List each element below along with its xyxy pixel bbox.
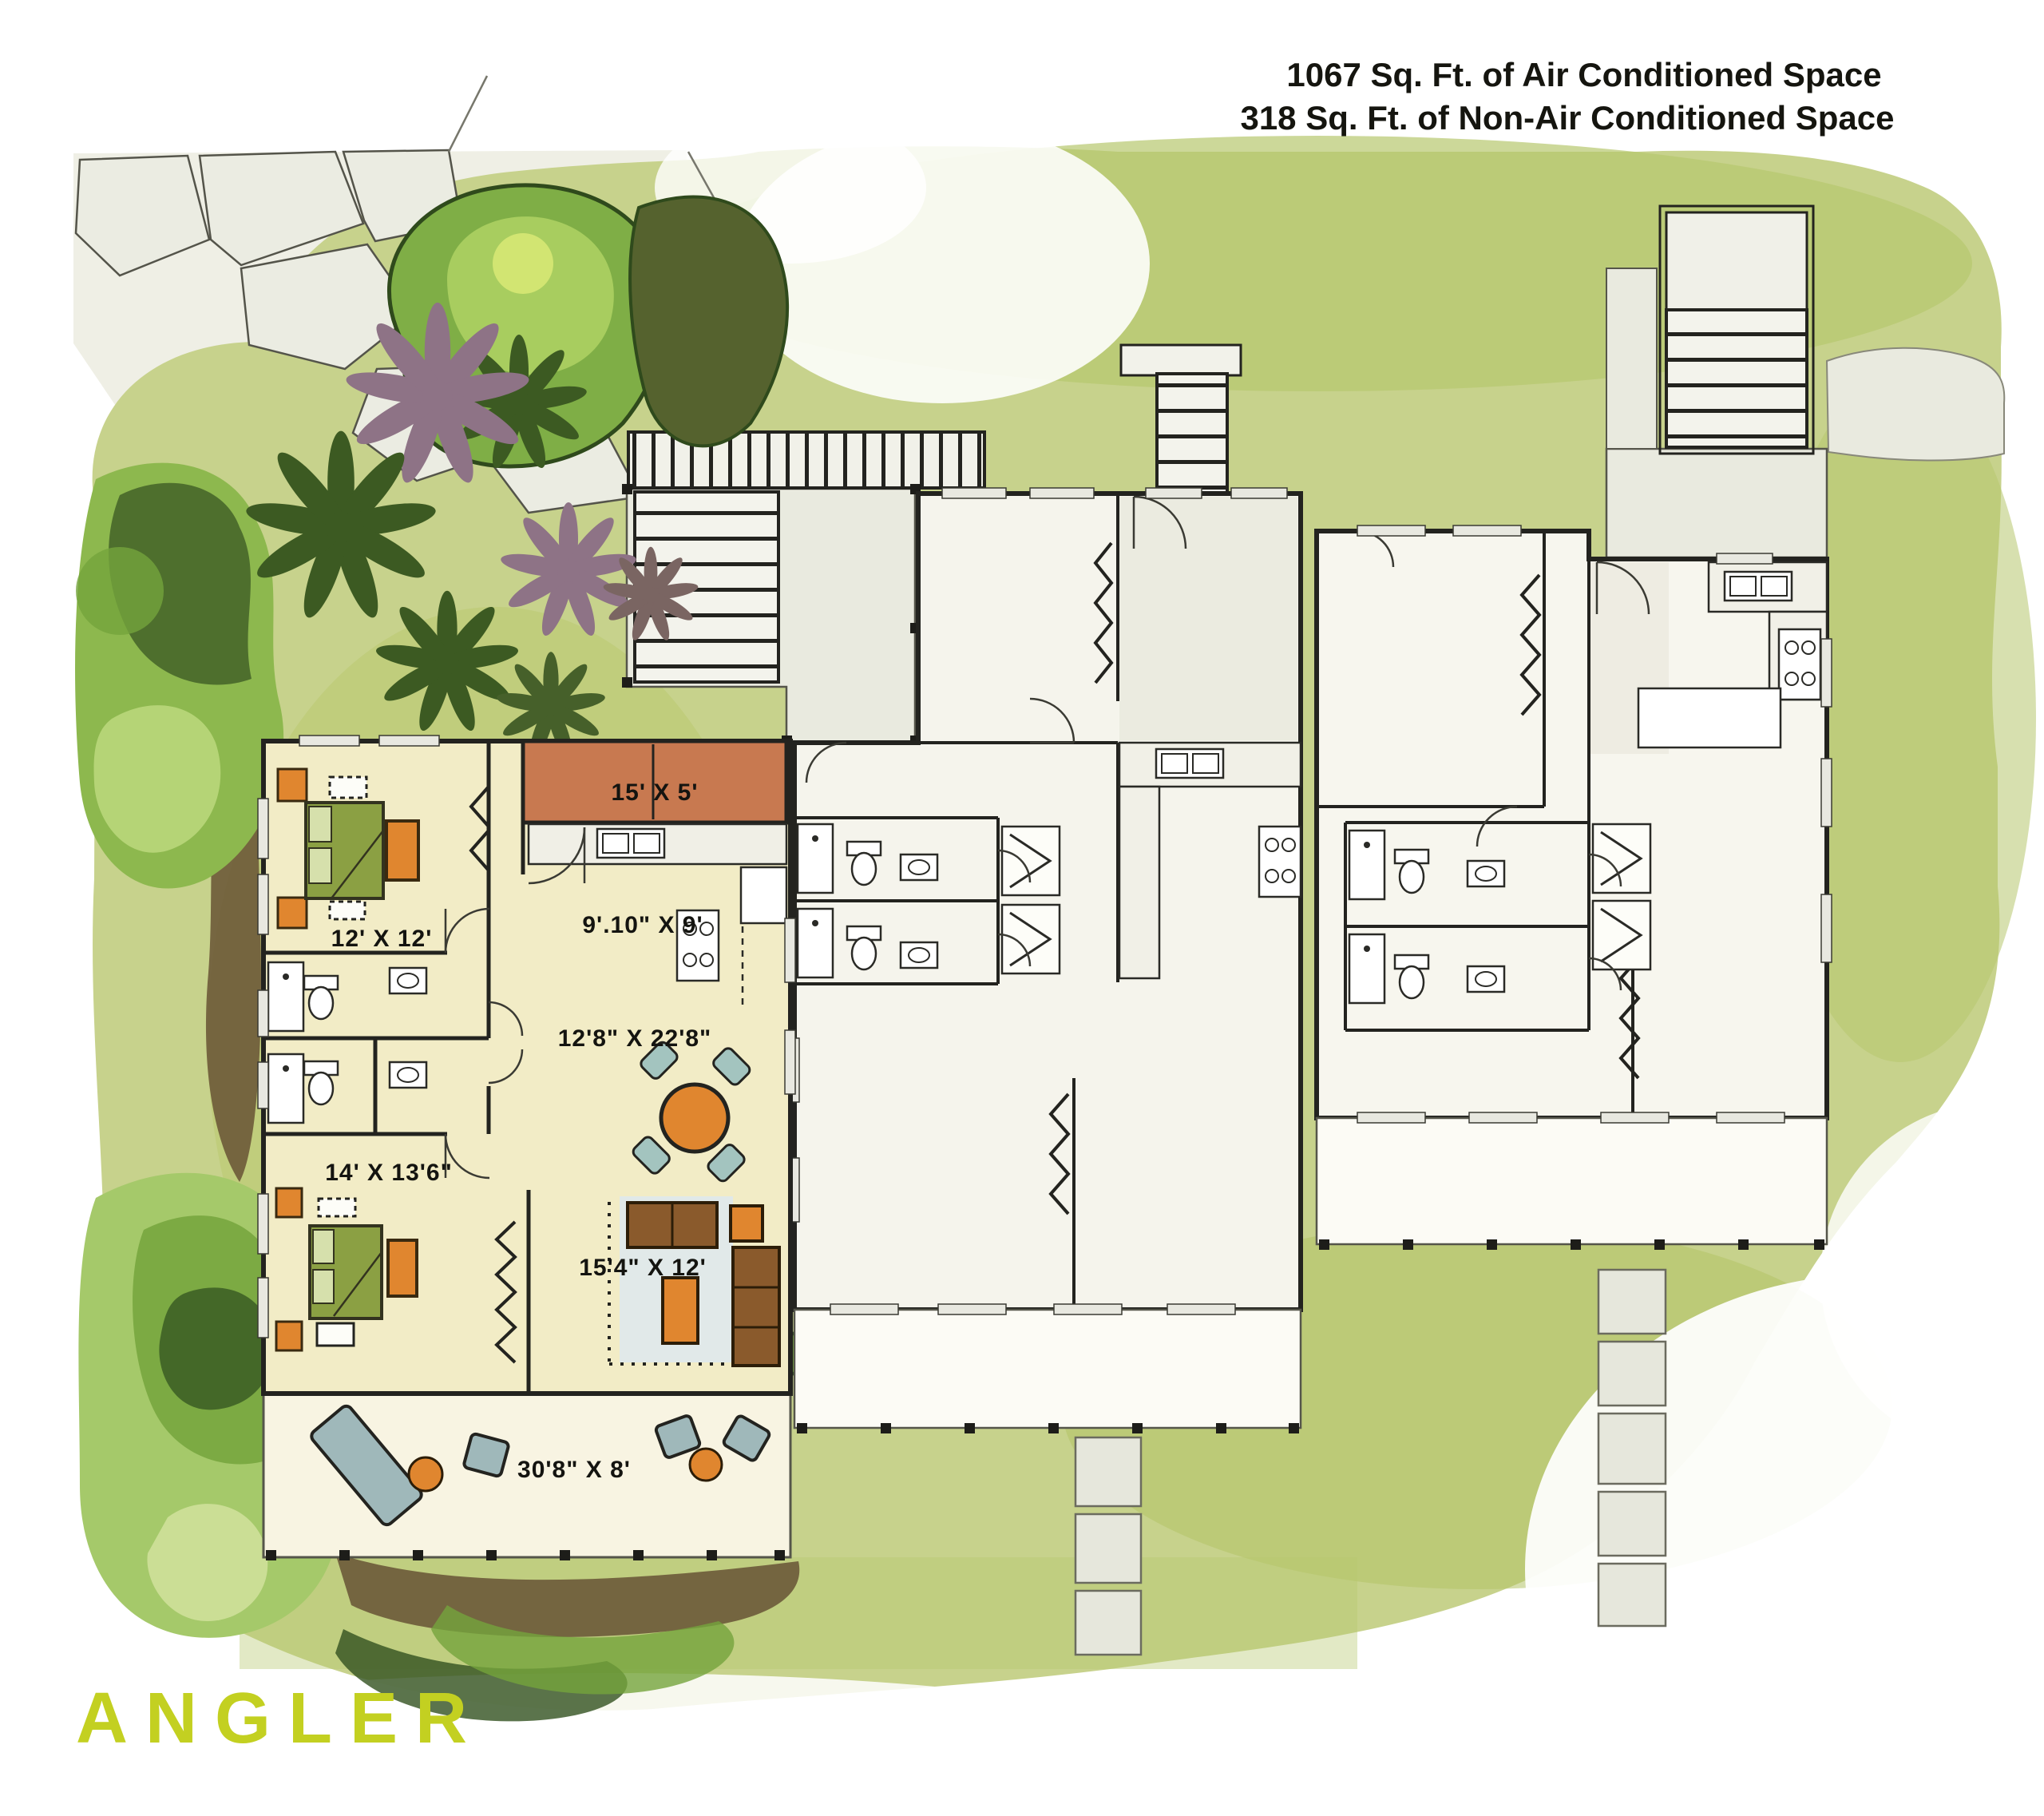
walkway-top-right [1827,348,2004,461]
nightstand [276,1322,302,1350]
site-plan-page: 15' X 5' 9'.10" X 9' 12' X 12' 12'8" X 2… [0,0,2044,1816]
stair-landing [1121,345,1241,375]
family-room-label: 15'4" X 12' [579,1255,707,1281]
dining-living-label: 12'8" X 22'8" [558,1025,712,1052]
armchair [386,821,418,880]
bathroom-sink [901,942,937,968]
sectional-sofa [733,1247,779,1366]
shower [798,909,833,977]
shower [1349,934,1384,1003]
coffee-table [663,1278,698,1343]
kitchen-counter-return [1119,787,1159,978]
right-unit-patio [1317,1118,1827,1244]
bathroom-sink [390,1062,426,1088]
shower [268,962,303,1031]
right-stair-sidewalk [1606,268,1657,449]
bedroom-label: 12' X 12' [331,926,433,952]
refrigerator [741,867,786,923]
bed [310,1226,382,1318]
kitchen-label: 9'.10" X 9' [582,912,703,938]
nightstand [278,769,307,801]
middle-unit-patio [794,1310,1301,1428]
bathroom-sink [1468,861,1504,886]
shower [798,824,833,893]
master-bedroom-label: 14' X 13'6" [325,1160,453,1186]
bathroom-sink [901,854,937,880]
boundary-line [449,76,487,152]
right-unit [1317,525,1832,1250]
middle-unit-hall-tint [1119,497,1297,740]
kitchen-sink [1725,572,1792,601]
shower [1349,831,1384,899]
dresser [319,1199,355,1216]
angler-logo: ANGLER [76,1679,485,1759]
featured-unit: 15' X 5' 9'.10" X 9' 12' X 12' 12'8" X 2… [258,736,795,1560]
side-table-round [690,1449,722,1481]
patio-chair [463,1433,509,1477]
air-conditioned-space-text: 1067 Sq. Ft. of Air Conditioned Space [1286,56,1881,93]
lanai-label: 30'8" X 8' [517,1457,631,1483]
nightstand [276,1188,302,1217]
non-air-conditioned-space-text: 318 Sq. Ft. of Non-Air Conditioned Space [1240,99,1894,137]
kitchen-sink [597,829,664,858]
stove [1259,827,1301,897]
dresser [330,777,366,798]
kitchen-sink [1156,749,1223,778]
dining-table [661,1084,728,1152]
bench [317,1323,354,1346]
site-plan-illustration: 15' X 5' 9'.10" X 9' 12' X 12' 12'8" X 2… [0,0,2044,1816]
side-table-round [409,1457,442,1491]
family-room-furniture [620,1196,779,1366]
stair-treads [1666,310,1807,447]
side-table [731,1206,763,1241]
nightstand [278,898,307,928]
bathroom-sink [1468,966,1504,992]
shower [268,1054,303,1123]
stair-landing [1666,212,1807,310]
stepping-stones-right [1598,1270,1666,1626]
shrub-mass-left [75,463,283,889]
bed [306,803,383,898]
bench [330,902,365,919]
stove [1779,629,1820,700]
kitchen-island [1638,688,1781,747]
right-staircase [1660,206,1813,454]
laundry-closet [1593,901,1650,969]
laundry-closet [1002,827,1060,895]
right-stair-landing [1606,449,1827,557]
laundry-closet [1593,824,1650,893]
stepping-stones-middle [1075,1437,1141,1655]
square-footage-note: 1067 Sq. Ft. of Air Conditioned Space 31… [1240,56,1894,137]
entry-porch-label: 15' X 5' [611,779,698,806]
armchair [388,1240,417,1296]
bathroom-sink [390,968,426,993]
